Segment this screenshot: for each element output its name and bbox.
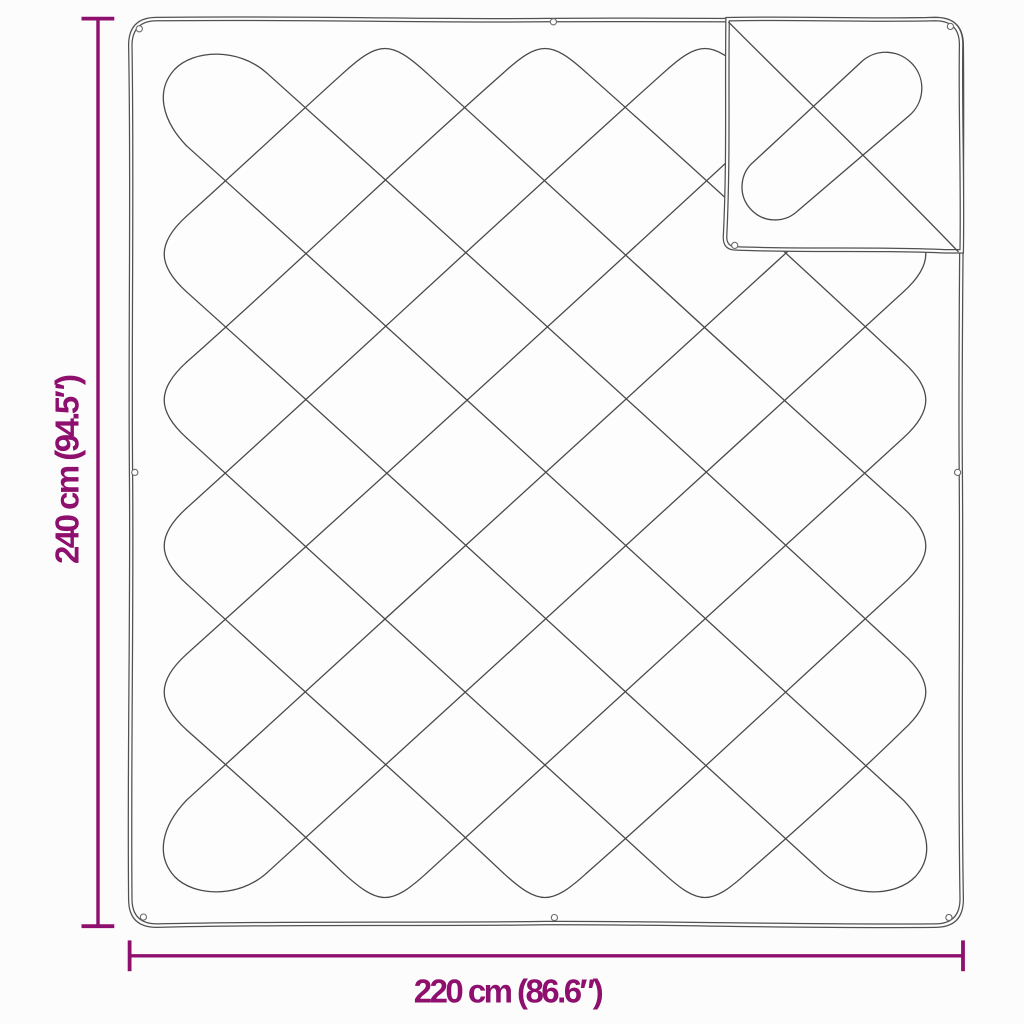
svg-text:240 cm (94.5″): 240 cm (94.5″) <box>48 375 85 564</box>
svg-text:220 cm (86.6″): 220 cm (86.6″) <box>414 973 603 1010</box>
